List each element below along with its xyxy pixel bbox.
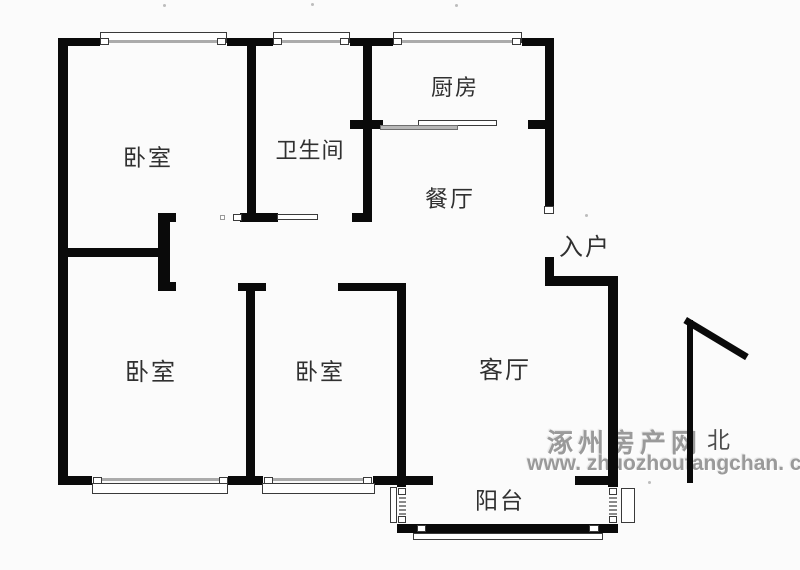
room-label-balcony: 阳台 xyxy=(475,490,525,513)
window-hatch xyxy=(399,496,406,515)
wall-segment xyxy=(352,213,372,222)
window-cap xyxy=(363,477,372,484)
room-label-bedroom-bottom-left: 卧室 xyxy=(125,361,177,385)
window-cap xyxy=(93,477,102,484)
wall-segment xyxy=(240,213,278,222)
wall-segment xyxy=(402,524,618,533)
artifact-dot xyxy=(163,4,166,7)
wall-segment xyxy=(158,213,176,222)
wall-segment xyxy=(338,283,405,291)
window-cap xyxy=(273,38,282,45)
window-cap xyxy=(340,38,349,45)
wall-segment xyxy=(58,38,68,485)
north-arrow-diagonal xyxy=(683,317,748,360)
door-frame-mark xyxy=(233,214,242,221)
wall-segment xyxy=(228,476,263,485)
window-cap xyxy=(609,516,617,523)
wall-segment xyxy=(246,291,255,477)
wall-segment xyxy=(238,283,266,291)
floorplan-canvas: 涿州房产网 www. zhuozhoufangchan. com 北 卧室卫生间… xyxy=(0,0,800,570)
window-frame xyxy=(92,483,228,494)
window-cap xyxy=(398,516,406,523)
watermark-site-url: www. zhuozhoufangchan. com xyxy=(527,453,800,474)
wall-segment xyxy=(58,248,158,257)
north-label: 北 xyxy=(707,429,730,452)
window-cap xyxy=(589,525,599,532)
window-cap xyxy=(609,488,617,495)
door-swing-mark xyxy=(220,215,225,220)
room-label-bathroom: 卫生间 xyxy=(275,140,344,162)
door-frame-mark xyxy=(544,206,554,214)
window-cap xyxy=(100,38,109,45)
wall-segment xyxy=(373,476,433,485)
window-glass-bar xyxy=(272,478,364,481)
wall-segment xyxy=(575,476,618,485)
wall-segment xyxy=(350,120,383,129)
window-frame xyxy=(621,488,635,523)
artifact-dot xyxy=(455,4,458,7)
window-cap xyxy=(219,477,228,484)
window-frame xyxy=(390,487,397,523)
window-cap xyxy=(512,38,521,45)
window-hatch xyxy=(609,496,617,515)
window-cap xyxy=(398,488,406,495)
wall-segment xyxy=(545,38,554,213)
window-glass-bar xyxy=(401,40,513,43)
room-label-kitchen: 厨房 xyxy=(431,77,479,99)
sliding-door xyxy=(277,214,318,220)
room-label-entry: 入户 xyxy=(559,236,611,260)
room-label-dining-room: 餐厅 xyxy=(425,188,475,211)
window-glass-bar xyxy=(281,40,341,43)
window-cap xyxy=(264,477,273,484)
artifact-dot xyxy=(585,214,588,217)
window-glass-bar xyxy=(101,478,219,481)
window-cap xyxy=(393,38,402,45)
wall-segment xyxy=(158,213,170,291)
window-cap xyxy=(417,525,426,532)
wall-segment xyxy=(687,320,693,483)
wall-segment xyxy=(58,476,92,485)
wall-segment xyxy=(528,120,546,129)
window-glass-bar xyxy=(108,40,218,43)
room-label-living-room: 客厅 xyxy=(479,359,531,383)
window-cap xyxy=(217,38,226,45)
room-label-bedroom-top-left: 卧室 xyxy=(123,147,173,170)
artifact-dot xyxy=(311,3,314,6)
balcony-sill xyxy=(413,533,603,540)
wall-segment xyxy=(158,282,176,291)
artifact-dot xyxy=(648,481,651,484)
wall-segment xyxy=(363,44,372,214)
kitchen-counter xyxy=(380,125,458,130)
window-frame xyxy=(262,483,375,494)
room-label-bedroom-bottom-middle: 卧室 xyxy=(295,361,345,384)
wall-segment xyxy=(247,44,256,214)
